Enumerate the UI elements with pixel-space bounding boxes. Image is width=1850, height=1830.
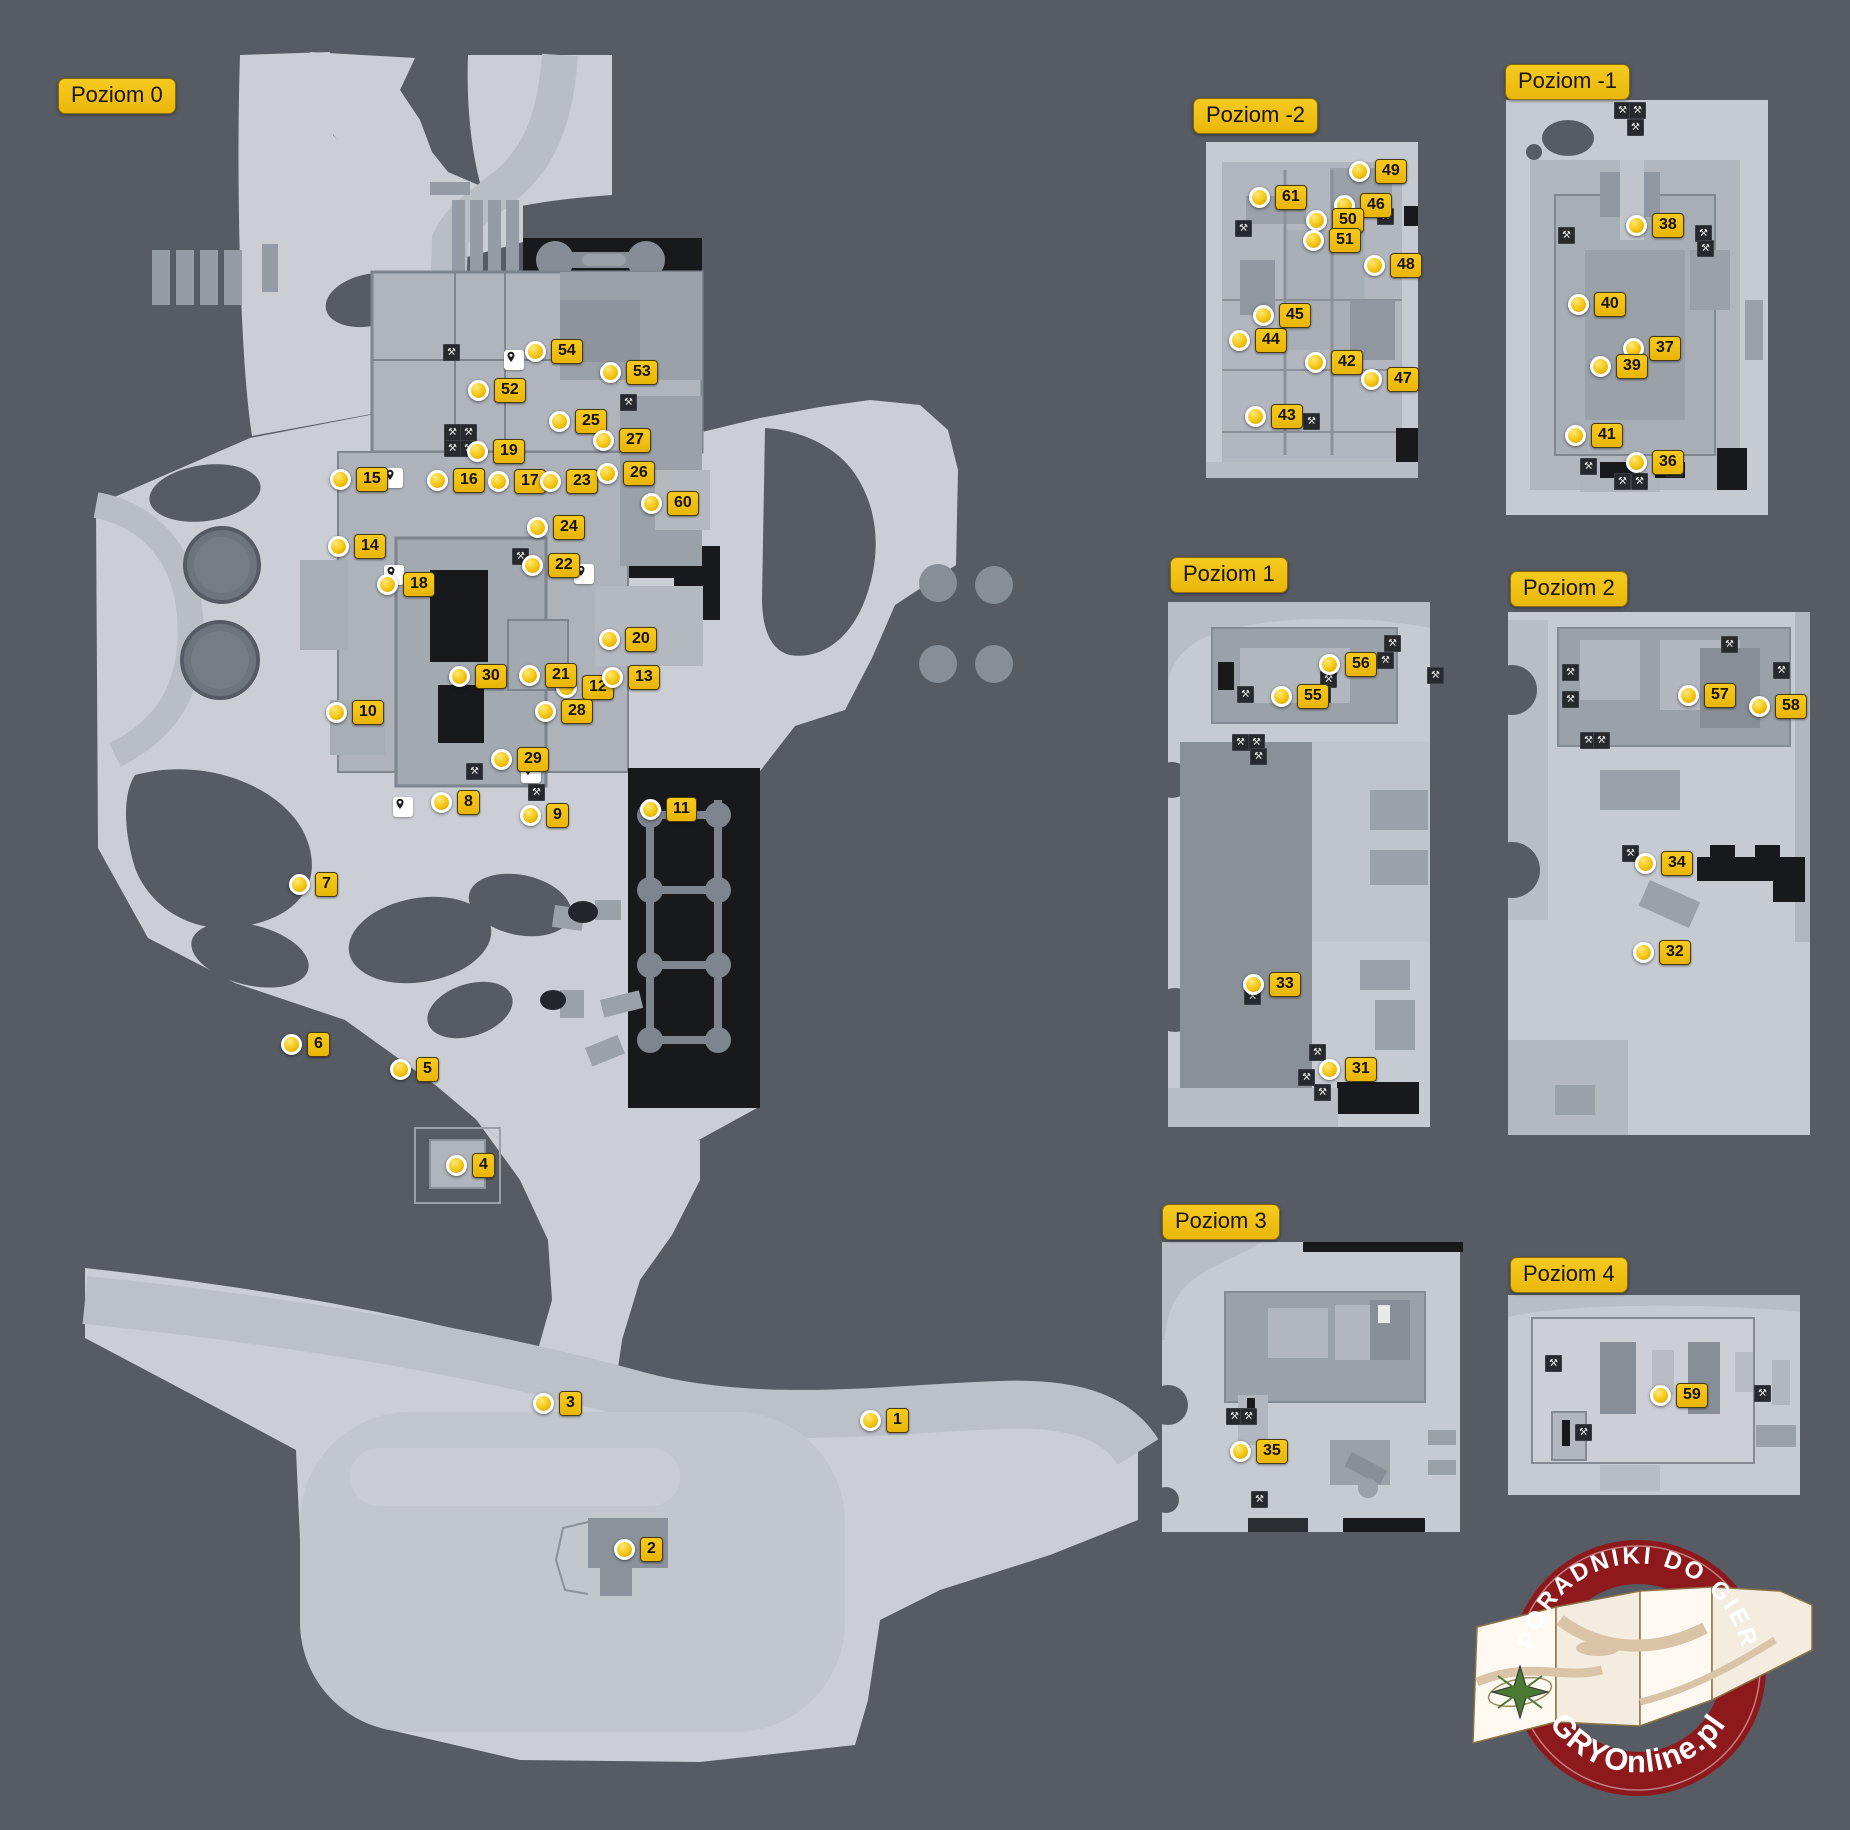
collectible-dot[interactable] bbox=[1271, 686, 1292, 707]
workbench-icon: ⚒ bbox=[1545, 1355, 1562, 1372]
marker-number: 39 bbox=[1616, 354, 1648, 379]
workbench-icon: ⚒ bbox=[1629, 102, 1646, 119]
marker-number: 23 bbox=[566, 469, 598, 494]
marker-39[interactable]: 39 bbox=[1590, 354, 1648, 379]
workbench-icon: ⚒ bbox=[1250, 748, 1267, 765]
map-artwork: PORADNIKI DO GIER GRYOnline.pl bbox=[0, 0, 1850, 1830]
marker-36[interactable]: 36 bbox=[1626, 450, 1684, 475]
marker-42[interactable]: 42 bbox=[1305, 350, 1363, 375]
collectible-dot[interactable] bbox=[527, 517, 548, 538]
marker-number: 13 bbox=[628, 665, 660, 690]
marker-55[interactable]: 55 bbox=[1271, 684, 1329, 709]
marker-number: 1 bbox=[886, 1408, 909, 1433]
map-poziom-3 bbox=[1148, 1242, 1463, 1532]
marker-51[interactable]: 51 bbox=[1303, 228, 1361, 253]
collectible-dot[interactable] bbox=[599, 629, 620, 650]
marker-54[interactable]: 54 bbox=[525, 339, 583, 364]
marker-number: 52 bbox=[494, 378, 526, 403]
marker-number: 47 bbox=[1387, 367, 1419, 392]
marker-number: 15 bbox=[356, 467, 388, 492]
workbench-icon: ⚒ bbox=[1697, 240, 1714, 257]
marker-22[interactable]: 22 bbox=[522, 553, 580, 578]
marker-18[interactable]: 18 bbox=[377, 572, 435, 597]
marker-31[interactable]: 31 bbox=[1319, 1057, 1377, 1082]
collectible-dot[interactable] bbox=[1633, 942, 1654, 963]
level-label-poziom-minus1: Poziom -1 bbox=[1505, 64, 1630, 100]
marker-32[interactable]: 32 bbox=[1633, 940, 1691, 965]
collectible-dot[interactable] bbox=[1303, 230, 1324, 251]
level-label-poziom-4: Poziom 4 bbox=[1510, 1257, 1628, 1293]
collectible-dot[interactable] bbox=[535, 701, 556, 722]
marker-6[interactable]: 6 bbox=[281, 1032, 330, 1057]
marker-16[interactable]: 16 bbox=[427, 468, 485, 493]
marker-56[interactable]: 56 bbox=[1319, 652, 1377, 677]
marker-43[interactable]: 43 bbox=[1245, 404, 1303, 429]
level-label-poziom-0: Poziom 0 bbox=[58, 78, 176, 114]
collectible-dot[interactable] bbox=[330, 469, 351, 490]
marker-number: 36 bbox=[1652, 450, 1684, 475]
marker-8[interactable]: 8 bbox=[431, 790, 480, 815]
marker-11[interactable]: 11 bbox=[640, 797, 697, 822]
marker-number: 31 bbox=[1345, 1057, 1377, 1082]
marker-53[interactable]: 53 bbox=[600, 360, 658, 385]
marker-number: 27 bbox=[619, 428, 651, 453]
marker-number: 43 bbox=[1271, 404, 1303, 429]
marker-number: 8 bbox=[457, 790, 480, 815]
level-label-poziom-2: Poziom 2 bbox=[1510, 571, 1628, 607]
workbench-icon: ⚒ bbox=[444, 440, 461, 457]
marker-33[interactable]: 33 bbox=[1243, 972, 1301, 997]
marker-number: 4 bbox=[472, 1153, 495, 1178]
marker-7[interactable]: 7 bbox=[289, 872, 338, 897]
east-lobe-wells bbox=[919, 564, 1013, 683]
workbench-icon: ⚒ bbox=[1303, 413, 1320, 430]
collectible-dot[interactable] bbox=[390, 1059, 411, 1080]
workbench-icon: ⚒ bbox=[1575, 1424, 1592, 1441]
collectible-dot[interactable] bbox=[1678, 685, 1699, 706]
marker-number: 26 bbox=[623, 461, 655, 486]
workbench-icon: ⚒ bbox=[620, 394, 637, 411]
marker-number: 35 bbox=[1256, 1439, 1288, 1464]
marker-number: 18 bbox=[403, 572, 435, 597]
marker-61[interactable]: 61 bbox=[1249, 185, 1307, 210]
marker-number: 46 bbox=[1360, 193, 1392, 218]
workbench-icon: ⚒ bbox=[443, 344, 460, 361]
workbench-icon: ⚒ bbox=[1631, 473, 1648, 490]
workbench-icon: ⚒ bbox=[1614, 473, 1631, 490]
workbench-icon: ⚒ bbox=[444, 424, 461, 441]
level-label-poziom-3: Poziom 3 bbox=[1162, 1204, 1280, 1240]
collectible-dot[interactable] bbox=[431, 792, 452, 813]
workbench-icon: ⚒ bbox=[1384, 635, 1401, 652]
collectible-dot[interactable] bbox=[1253, 305, 1274, 326]
marker-number: 10 bbox=[352, 700, 384, 725]
marker-15[interactable]: 15 bbox=[330, 467, 388, 492]
marker-3[interactable]: 3 bbox=[533, 1391, 582, 1416]
collectible-dot[interactable] bbox=[468, 380, 489, 401]
marker-5[interactable]: 5 bbox=[390, 1057, 439, 1082]
collectible-dot[interactable] bbox=[519, 665, 540, 686]
marker-1[interactable]: 1 bbox=[860, 1408, 909, 1433]
marker-30[interactable]: 30 bbox=[449, 664, 507, 689]
marker-10[interactable]: 10 bbox=[326, 700, 384, 725]
marker-40[interactable]: 40 bbox=[1568, 292, 1626, 317]
collectible-dot[interactable] bbox=[522, 555, 543, 576]
workbench-icon: ⚒ bbox=[1377, 652, 1394, 669]
collectible-dot[interactable] bbox=[597, 463, 618, 484]
collectible-dot[interactable] bbox=[602, 667, 623, 688]
collectible-dot[interactable] bbox=[1364, 255, 1385, 276]
marker-number: 34 bbox=[1661, 851, 1693, 876]
marker-number: 7 bbox=[315, 872, 338, 897]
collectible-dot[interactable] bbox=[289, 874, 310, 895]
marker-17[interactable]: 17 bbox=[488, 469, 546, 494]
marker-number: 42 bbox=[1331, 350, 1363, 375]
workbench-icon: ⚒ bbox=[1721, 636, 1738, 653]
marker-27[interactable]: 27 bbox=[593, 428, 651, 453]
marker-29[interactable]: 29 bbox=[491, 747, 549, 772]
marker-20[interactable]: 20 bbox=[599, 627, 657, 652]
collectible-dot[interactable] bbox=[1229, 330, 1250, 351]
collectible-dot[interactable] bbox=[449, 666, 470, 687]
collectible-dot[interactable] bbox=[1361, 369, 1382, 390]
collectible-dot[interactable] bbox=[1349, 161, 1370, 182]
marker-number: 61 bbox=[1275, 185, 1307, 210]
marker-44[interactable]: 44 bbox=[1229, 328, 1287, 353]
marker-number: 55 bbox=[1297, 684, 1329, 709]
collectible-dot[interactable] bbox=[1230, 1441, 1251, 1462]
marker-47[interactable]: 47 bbox=[1361, 367, 1419, 392]
poziom0-terrain bbox=[85, 52, 1138, 1762]
marker-23[interactable]: 23 bbox=[540, 469, 598, 494]
marker-number: 6 bbox=[307, 1032, 330, 1057]
location-pin-icon bbox=[393, 797, 413, 817]
marker-26[interactable]: 26 bbox=[597, 461, 655, 486]
marker-number: 58 bbox=[1775, 694, 1807, 719]
collectible-dot[interactable] bbox=[326, 702, 347, 723]
courtyard-north bbox=[430, 570, 488, 662]
collectible-dot[interactable] bbox=[641, 493, 662, 514]
collectible-dot[interactable] bbox=[1565, 425, 1586, 446]
courtyard-south bbox=[438, 685, 484, 743]
marker-4[interactable]: 4 bbox=[446, 1153, 495, 1178]
workbench-icon: ⚒ bbox=[1754, 1385, 1771, 1402]
marker-number: 5 bbox=[416, 1057, 439, 1082]
marker-48[interactable]: 48 bbox=[1364, 253, 1422, 278]
collectible-dot[interactable] bbox=[520, 805, 541, 826]
workbench-icon: ⚒ bbox=[1427, 667, 1444, 684]
marker-24[interactable]: 24 bbox=[527, 515, 585, 540]
marker-number: 14 bbox=[354, 534, 386, 559]
gryonline-logo: PORADNIKI DO GIER GRYOnline.pl bbox=[1473, 1542, 1812, 1790]
marker-58[interactable]: 58 bbox=[1749, 694, 1807, 719]
marker-number: 20 bbox=[625, 627, 657, 652]
marker-number: 32 bbox=[1659, 940, 1691, 965]
marker-52[interactable]: 52 bbox=[468, 378, 526, 403]
collectible-dot[interactable] bbox=[1635, 853, 1656, 874]
workbench-icon: ⚒ bbox=[466, 763, 483, 780]
marker-number: 16 bbox=[453, 468, 485, 493]
collectible-dot[interactable] bbox=[491, 749, 512, 770]
collectible-dot[interactable] bbox=[1749, 696, 1770, 717]
collectible-dot[interactable] bbox=[1319, 1059, 1340, 1080]
marker-number: 45 bbox=[1279, 303, 1311, 328]
map-poziom-1 bbox=[1153, 602, 1430, 1127]
marker-2[interactable]: 2 bbox=[614, 1537, 663, 1562]
collectible-dot[interactable] bbox=[614, 1539, 635, 1560]
workbench-icon: ⚒ bbox=[1773, 662, 1790, 679]
workbench-icon: ⚒ bbox=[1580, 458, 1597, 475]
collectible-dot[interactable] bbox=[328, 536, 349, 557]
marker-9[interactable]: 9 bbox=[520, 803, 569, 828]
collectible-dot[interactable] bbox=[1245, 406, 1266, 427]
marker-number: 53 bbox=[626, 360, 658, 385]
location-pin-icon bbox=[504, 350, 524, 370]
level-label-poziom-1: Poziom 1 bbox=[1170, 557, 1288, 593]
marker-number: 9 bbox=[546, 803, 569, 828]
collectible-dot[interactable] bbox=[377, 574, 398, 595]
marker-49[interactable]: 49 bbox=[1349, 159, 1407, 184]
collectible-dot[interactable] bbox=[860, 1410, 881, 1431]
workbench-icon: ⚒ bbox=[1593, 732, 1610, 749]
workbench-icon: ⚒ bbox=[1314, 1084, 1331, 1101]
collectible-dot[interactable] bbox=[1305, 352, 1326, 373]
marker-19[interactable]: 19 bbox=[467, 439, 525, 464]
workbench-icon: ⚒ bbox=[528, 784, 545, 801]
workbench-icon: ⚒ bbox=[1558, 227, 1575, 244]
workbench-icon: ⚒ bbox=[1298, 1069, 1315, 1086]
workbench-icon: ⚒ bbox=[1237, 686, 1254, 703]
marker-28[interactable]: 28 bbox=[535, 699, 593, 724]
collectible-dot[interactable] bbox=[533, 1393, 554, 1414]
collectible-dot[interactable] bbox=[600, 362, 621, 383]
collectible-dot[interactable] bbox=[540, 471, 561, 492]
collectible-dot[interactable] bbox=[525, 341, 546, 362]
workbench-icon: ⚒ bbox=[1235, 220, 1252, 237]
collectible-dot[interactable] bbox=[640, 799, 661, 820]
marker-number: 2 bbox=[640, 1537, 663, 1562]
workbench-icon: ⚒ bbox=[1251, 1491, 1268, 1508]
marker-number: 57 bbox=[1704, 683, 1736, 708]
marker-number: 41 bbox=[1591, 423, 1623, 448]
marker-45[interactable]: 45 bbox=[1253, 303, 1311, 328]
marker-14[interactable]: 14 bbox=[328, 534, 386, 559]
marker-59[interactable]: 59 bbox=[1650, 1383, 1708, 1408]
collectible-dot[interactable] bbox=[488, 471, 509, 492]
collectible-dot[interactable] bbox=[549, 411, 570, 432]
level-label-poziom-minus2: Poziom -2 bbox=[1193, 98, 1318, 134]
marker-number: 38 bbox=[1652, 213, 1684, 238]
marker-34[interactable]: 34 bbox=[1635, 851, 1693, 876]
marker-number: 33 bbox=[1269, 972, 1301, 997]
marker-number: 21 bbox=[545, 663, 577, 688]
marker-number: 22 bbox=[548, 553, 580, 578]
marker-21[interactable]: 21 bbox=[519, 663, 577, 688]
marker-number: 11 bbox=[666, 797, 697, 822]
marker-number: 49 bbox=[1375, 159, 1407, 184]
workbench-icon: ⚒ bbox=[1562, 664, 1579, 681]
marker-number: 3 bbox=[559, 1391, 582, 1416]
workbench-icon: ⚒ bbox=[1240, 1408, 1257, 1425]
marker-number: 59 bbox=[1676, 1383, 1708, 1408]
collectible-dot[interactable] bbox=[1319, 654, 1340, 675]
marker-number: 24 bbox=[553, 515, 585, 540]
marker-number: 48 bbox=[1390, 253, 1422, 278]
collectible-dot[interactable] bbox=[281, 1034, 302, 1055]
collectible-dot[interactable] bbox=[1243, 974, 1264, 995]
marker-number: 54 bbox=[551, 339, 583, 364]
collectible-dot[interactable] bbox=[1568, 294, 1589, 315]
marker-number: 60 bbox=[667, 491, 699, 516]
marker-38[interactable]: 38 bbox=[1626, 213, 1684, 238]
marker-number: 30 bbox=[475, 664, 507, 689]
marker-13[interactable]: 13 bbox=[602, 665, 660, 690]
marker-60[interactable]: 60 bbox=[641, 491, 699, 516]
collectible-dot[interactable] bbox=[593, 430, 614, 451]
map-page: PORADNIKI DO GIER GRYOnline.pl Poziom 0P… bbox=[0, 0, 1850, 1830]
marker-57[interactable]: 57 bbox=[1678, 683, 1736, 708]
collectible-dot[interactable] bbox=[1626, 215, 1647, 236]
marker-number: 19 bbox=[493, 439, 525, 464]
marker-number: 44 bbox=[1255, 328, 1287, 353]
marker-35[interactable]: 35 bbox=[1230, 1439, 1288, 1464]
collectible-dot[interactable] bbox=[1626, 452, 1647, 473]
workbench-icon: ⚒ bbox=[1232, 734, 1249, 751]
workbench-icon: ⚒ bbox=[1627, 119, 1644, 136]
collectible-dot[interactable] bbox=[446, 1155, 467, 1176]
workbench-icon: ⚒ bbox=[1562, 691, 1579, 708]
marker-number: 40 bbox=[1594, 292, 1626, 317]
collectible-dot[interactable] bbox=[1650, 1385, 1671, 1406]
marker-number: 37 bbox=[1649, 336, 1681, 361]
collectible-dot[interactable] bbox=[467, 441, 488, 462]
marker-number: 29 bbox=[517, 747, 549, 772]
marker-number: 28 bbox=[561, 699, 593, 724]
marker-number: 51 bbox=[1329, 228, 1361, 253]
collectible-dot[interactable] bbox=[1590, 356, 1611, 377]
marker-41[interactable]: 41 bbox=[1565, 423, 1623, 448]
marker-number: 56 bbox=[1345, 652, 1377, 677]
collectible-dot[interactable] bbox=[427, 470, 448, 491]
collectible-dot[interactable] bbox=[1249, 187, 1270, 208]
